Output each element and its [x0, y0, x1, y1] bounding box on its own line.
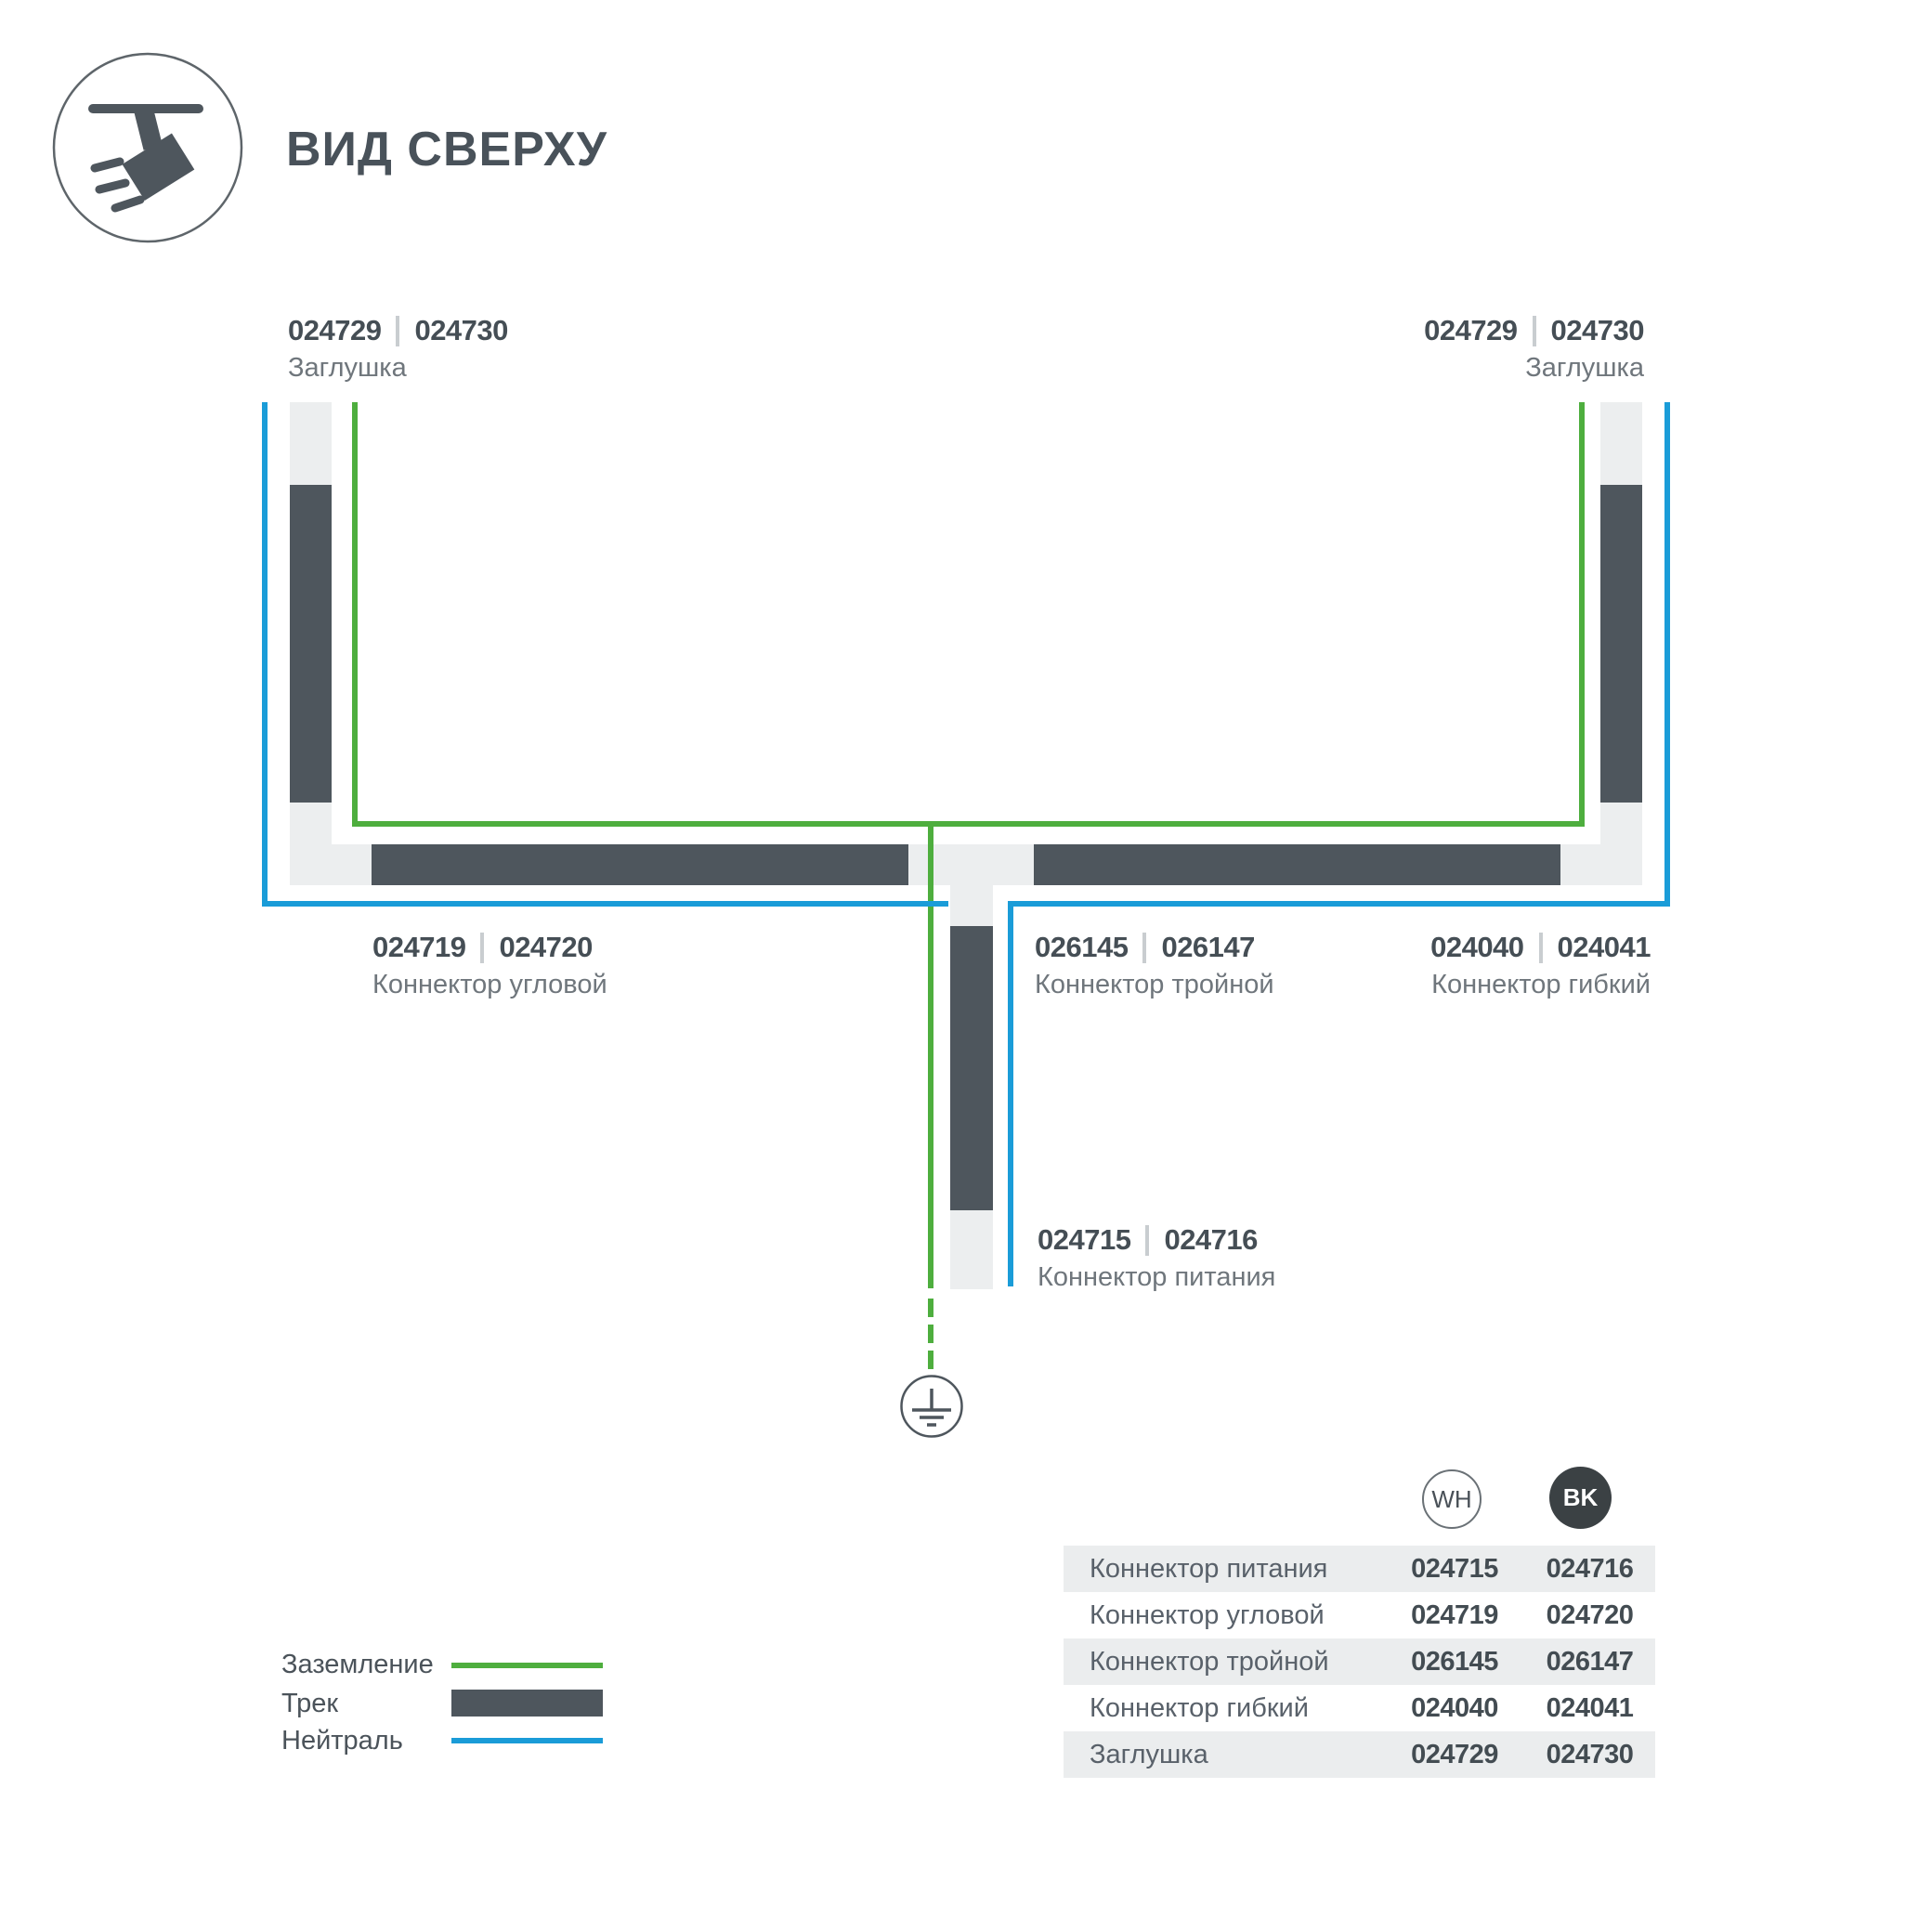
code-bk: 024716 [1164, 1223, 1257, 1257]
part-name: Заглушка [1424, 353, 1644, 384]
code-wh: 024729 [288, 314, 381, 347]
bk-code: 024041 [1524, 1685, 1655, 1731]
bk-code: 024730 [1524, 1731, 1655, 1778]
neutral-line-left [262, 402, 268, 907]
bk-color-badge: BK [1549, 1467, 1612, 1529]
code-pair: 026145 026147 [1035, 931, 1274, 964]
code-pair: 024040 024041 [1430, 931, 1651, 964]
code-wh: 024719 [372, 931, 465, 964]
table-row: Коннектор гибкий 024040 024041 [1064, 1685, 1655, 1731]
bk-badge-text: BK [1563, 1483, 1599, 1512]
part-name: Коннектор питания [1038, 1262, 1275, 1293]
label-corner-connector: 024719 024720 Коннектор угловой [372, 931, 607, 1000]
code-wh: 024040 [1430, 931, 1523, 964]
track-segment-left [290, 485, 332, 803]
code-bk: 026147 [1161, 931, 1254, 964]
wh-code: 024729 [1385, 1731, 1524, 1778]
wh-code: 026145 [1385, 1638, 1524, 1685]
row-label: Коннектор питания [1064, 1546, 1385, 1592]
legend-label-track: Трек [281, 1689, 338, 1719]
track-segment-horizontal-right [1034, 844, 1560, 885]
page-title: ВИД СВЕРХУ [286, 122, 607, 177]
part-name: Коннектор угловой [372, 970, 607, 1000]
code-separator [480, 933, 484, 963]
code-separator [396, 316, 399, 346]
code-separator [1142, 933, 1146, 963]
legend-label-ground: Заземление [281, 1650, 434, 1680]
neutral-line-horizontal-right [1008, 901, 1670, 907]
wh-code: 024719 [1385, 1592, 1524, 1638]
legend-swatch-track-bar [451, 1690, 603, 1717]
ground-line-right [1579, 402, 1585, 827]
wh-code: 024040 [1385, 1685, 1524, 1731]
track-spotlight-icon [50, 50, 245, 245]
wh-badge-text: WH [1431, 1485, 1471, 1514]
code-pair: 024719 024720 [372, 931, 607, 964]
code-bk: 024730 [1551, 314, 1644, 347]
ground-line-dashed [928, 1299, 933, 1369]
code-pair: 024729 024730 [288, 314, 508, 347]
table-row: Коннектор угловой 024719 024720 [1064, 1592, 1655, 1638]
ground-line-horizontal [352, 821, 1585, 827]
code-pair: 024729 024730 [1424, 314, 1644, 347]
code-bk: 024041 [1558, 931, 1651, 964]
ground-line-left [352, 402, 358, 827]
track-segment-horizontal-left [372, 844, 908, 885]
row-label: Коннектор угловой [1064, 1592, 1385, 1638]
track-segment-center [950, 926, 993, 1210]
row-label: Коннектор гибкий [1064, 1685, 1385, 1731]
label-end-cap-left: 024729 024730 Заглушка [288, 314, 508, 384]
part-name: Коннектор гибкий [1430, 970, 1651, 1000]
table-row: Заглушка 024729 024730 [1064, 1731, 1655, 1778]
bk-code: 026147 [1524, 1638, 1655, 1685]
code-pair: 024715 024716 [1038, 1223, 1275, 1257]
code-separator [1539, 933, 1543, 963]
track-segment-right [1600, 485, 1642, 803]
row-label: Коннектор тройной [1064, 1638, 1385, 1685]
legend-swatch-ground-line [451, 1663, 603, 1668]
code-bk: 024720 [499, 931, 592, 964]
code-wh: 026145 [1035, 931, 1128, 964]
code-bk: 024730 [414, 314, 507, 347]
wh-code: 024715 [1385, 1546, 1524, 1592]
bk-code: 024720 [1524, 1592, 1655, 1638]
part-name: Коннектор тройной [1035, 970, 1274, 1000]
neutral-line-center [1008, 901, 1013, 1286]
code-wh: 024729 [1424, 314, 1517, 347]
ground-line-center [928, 821, 933, 1288]
label-triple-connector: 026145 026147 Коннектор тройной [1035, 931, 1274, 1000]
code-separator [1533, 316, 1536, 346]
legend-swatch-neutral-line [451, 1738, 603, 1743]
code-wh: 024715 [1038, 1223, 1130, 1257]
part-name: Заглушка [288, 353, 508, 384]
row-label: Заглушка [1064, 1731, 1385, 1778]
earth-ground-icon [899, 1374, 964, 1439]
page: ВИД СВЕРХУ 024729 024730 Заглушка [0, 0, 1932, 1932]
codes-table: Коннектор питания 024715 024716 Коннекто… [1064, 1546, 1655, 1778]
neutral-line-horizontal-left [262, 901, 948, 907]
label-end-cap-right: 024729 024730 Заглушка [1424, 314, 1644, 384]
table-row: Коннектор питания 024715 024716 [1064, 1546, 1655, 1592]
table-row: Коннектор тройной 026145 026147 [1064, 1638, 1655, 1685]
neutral-line-right [1664, 402, 1670, 907]
label-power-connector: 024715 024716 Коннектор питания [1038, 1223, 1275, 1293]
wh-color-badge: WH [1422, 1469, 1482, 1529]
legend-label-neutral: Нейтраль [281, 1726, 403, 1756]
code-separator [1145, 1225, 1149, 1256]
bk-code: 024716 [1524, 1546, 1655, 1592]
label-flexible-connector: 024040 024041 Коннектор гибкий [1430, 931, 1651, 1000]
